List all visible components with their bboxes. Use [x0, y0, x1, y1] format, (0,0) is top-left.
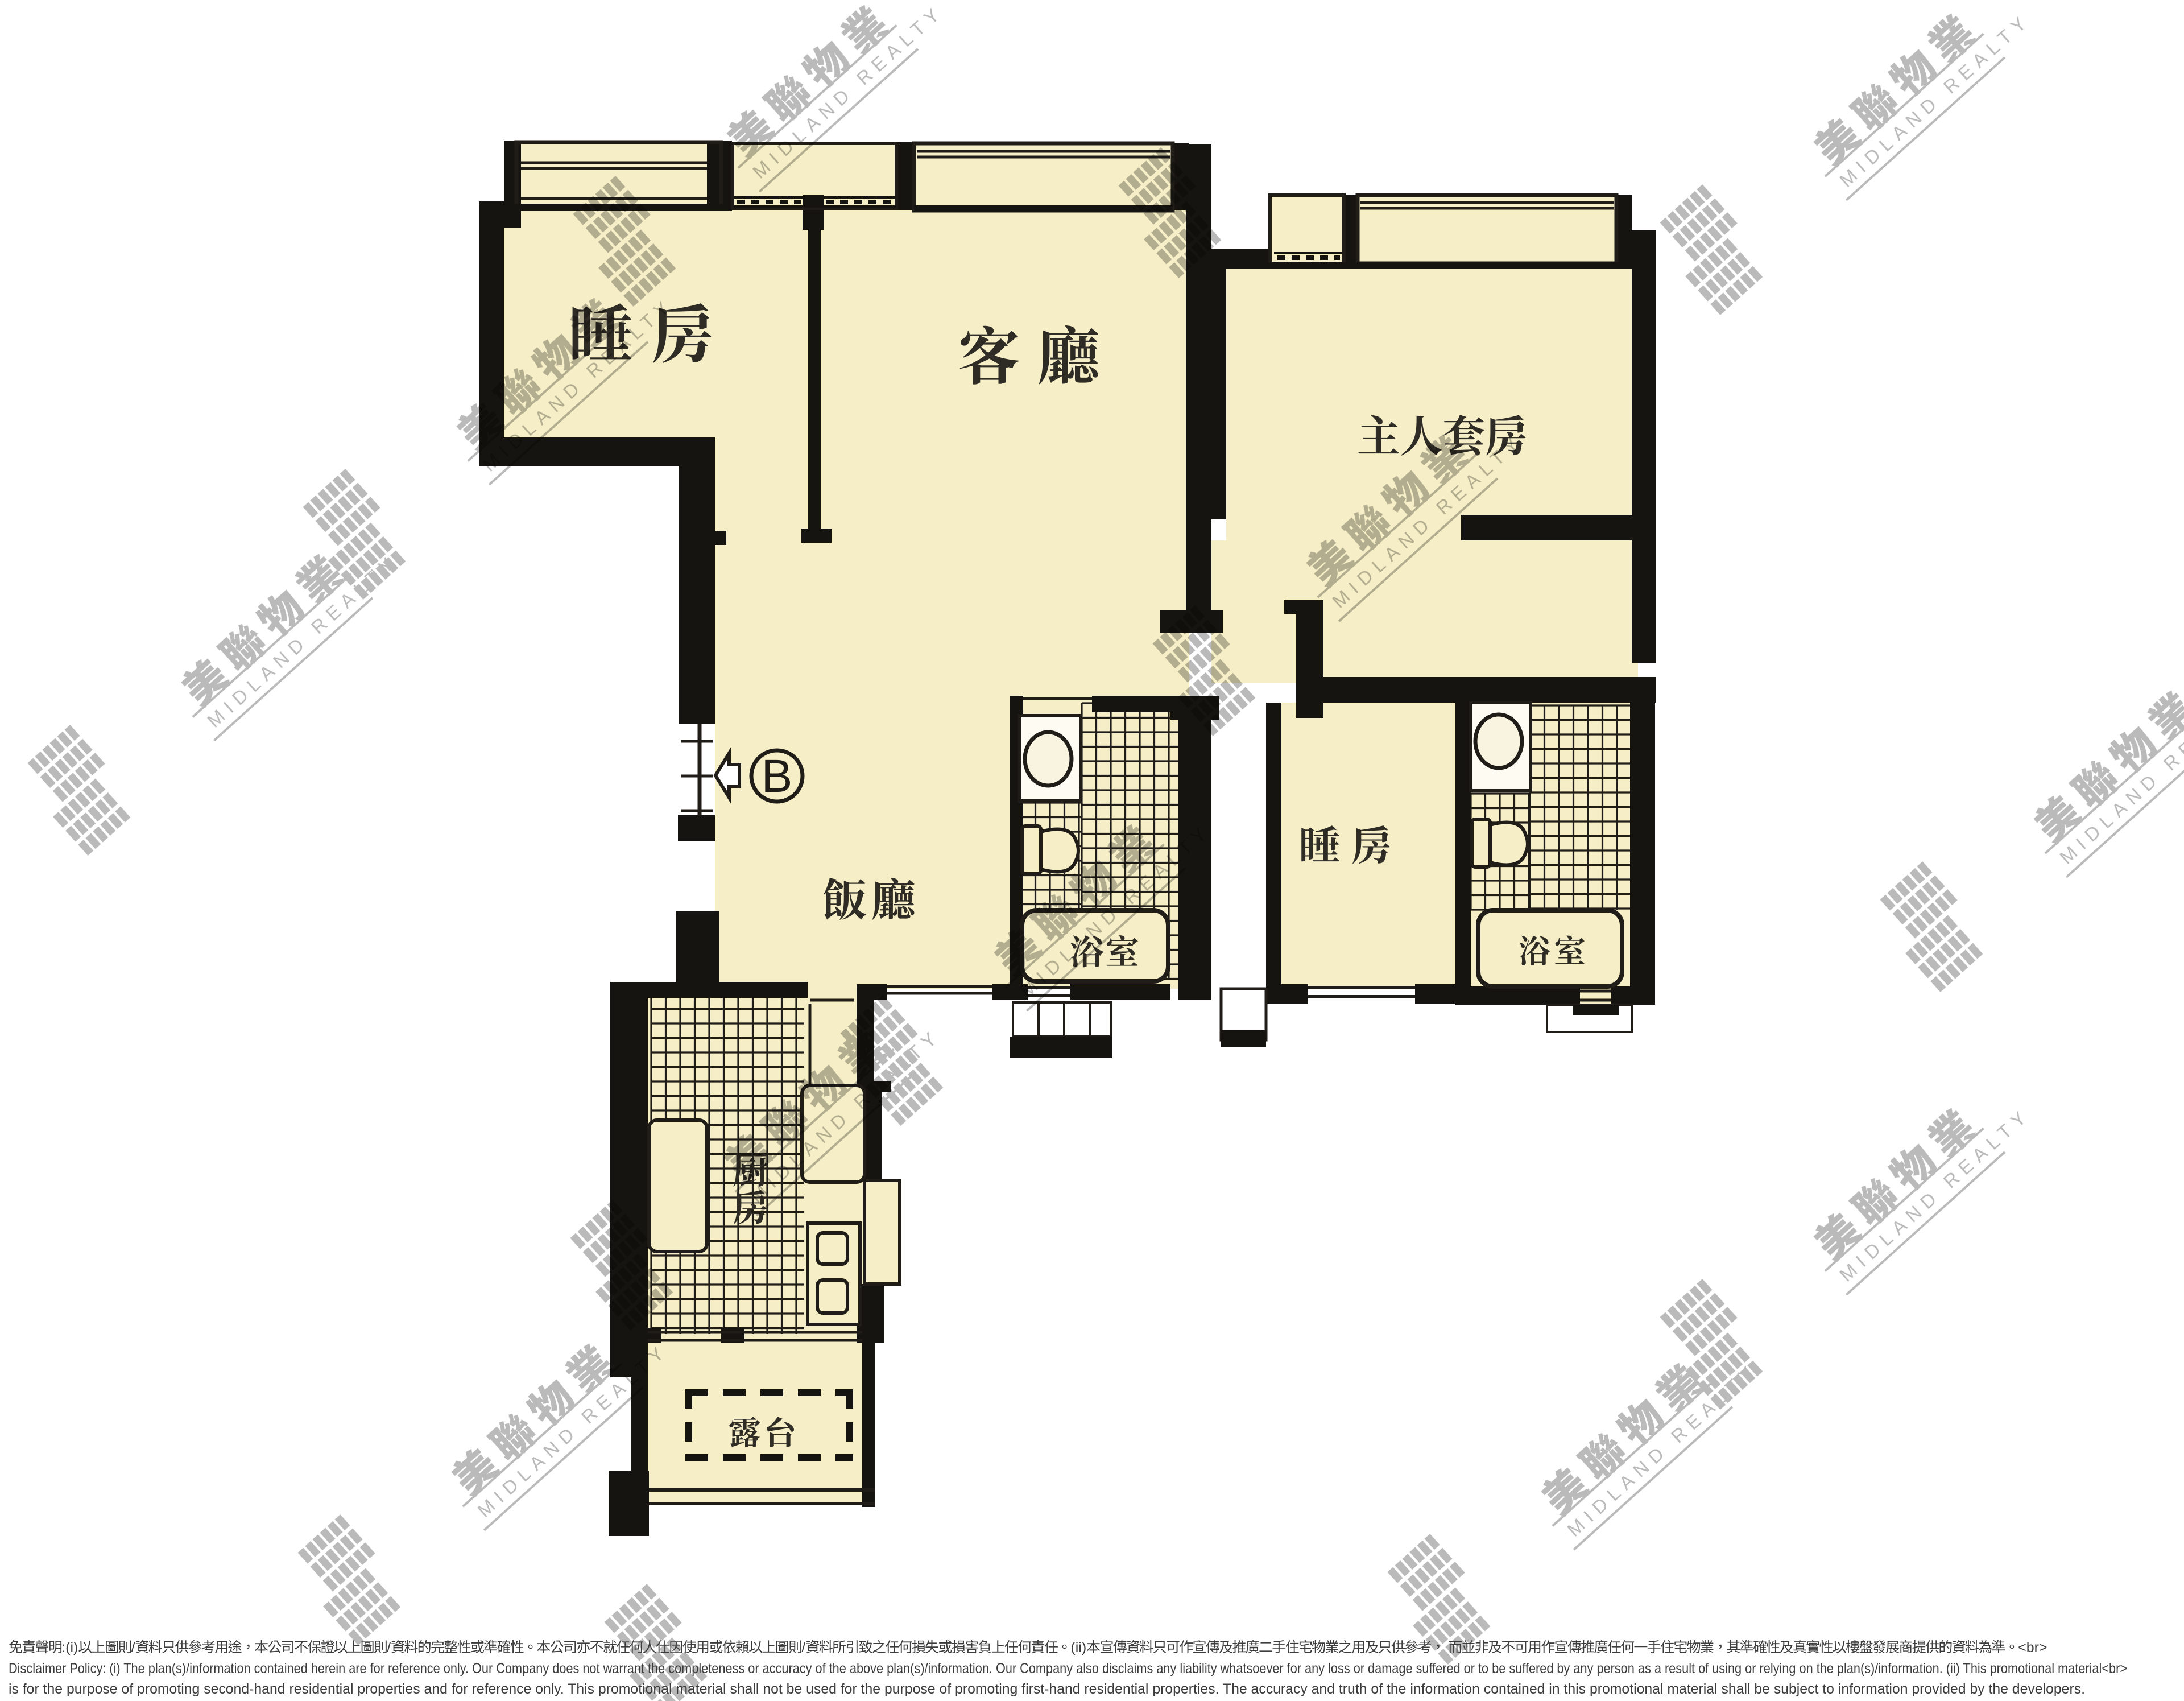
svg-text:B: B [762, 750, 793, 802]
svg-text:Disclaimer Policy: (i) The pla: Disclaimer Policy: (i) The plan(s)/infor… [9, 1661, 2127, 1677]
svg-text:/: / [387, 1640, 391, 1655]
svg-text::(i): :(i) [61, 1640, 78, 1655]
svg-text:(ii): (ii) [1070, 1640, 1086, 1655]
svg-text:/: / [801, 1640, 805, 1655]
svg-text:<br>: <br> [2018, 1640, 2047, 1655]
svg-text:/: / [131, 1640, 135, 1655]
svg-text:is for the purpose of promotin: is for the purpose of promoting second-h… [9, 1681, 2085, 1697]
